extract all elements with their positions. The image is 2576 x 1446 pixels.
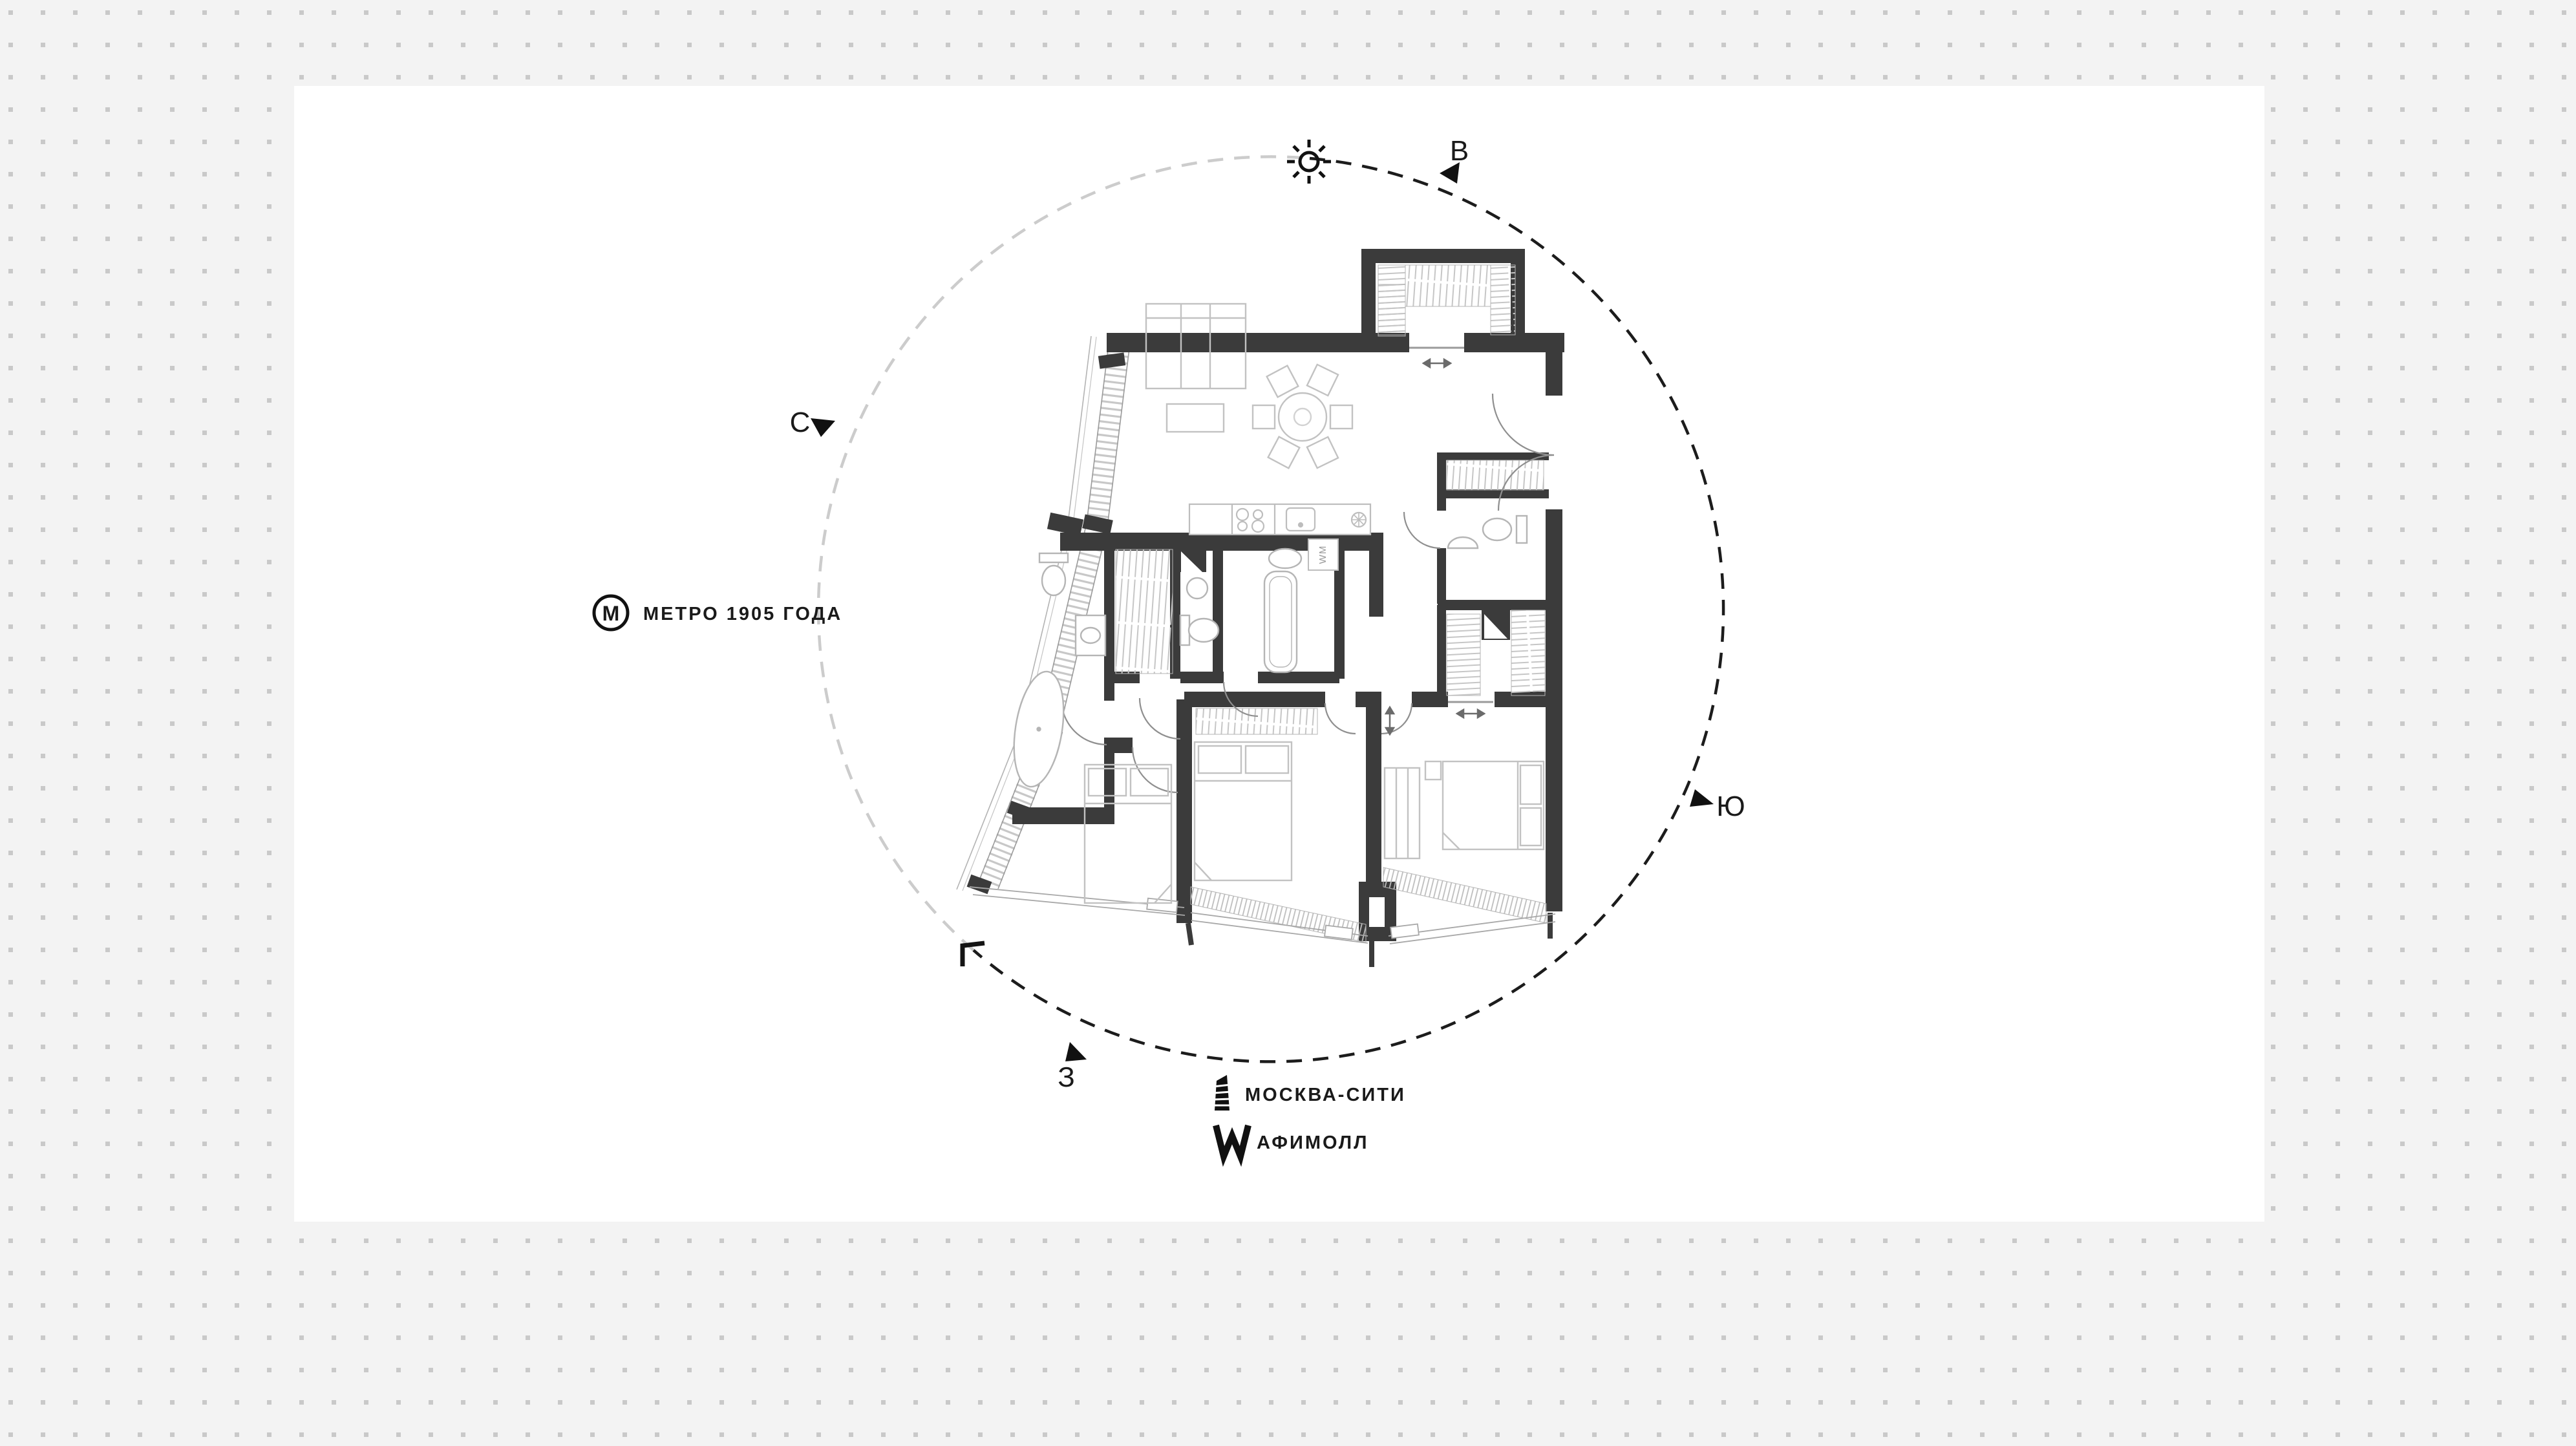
compass-east-label: В bbox=[1450, 135, 1469, 167]
floorplan-scene: С В Ю З М МЕТРО 1905 ГОДА МОСКВА-СИТИ АФ bbox=[0, 0, 2576, 1446]
page: С В Ю З М МЕТРО 1905 ГОДА МОСКВА-СИТИ АФ bbox=[0, 0, 2576, 1446]
compass-north-label: С bbox=[790, 407, 811, 438]
afimall-label: АФИМОЛЛ bbox=[1257, 1132, 1369, 1153]
washing-machine: WM bbox=[1308, 539, 1338, 570]
kitchen bbox=[1189, 504, 1370, 535]
moscow-city-label: МОСКВА-СИТИ bbox=[1245, 1085, 1406, 1105]
metro-icon-letter: М bbox=[602, 602, 620, 625]
wm-label: WM bbox=[1317, 546, 1328, 564]
compass-west-label: З bbox=[1058, 1061, 1076, 1093]
compass-south-label: Ю bbox=[1716, 791, 1745, 822]
metro-label: МЕТРО 1905 ГОДА bbox=[643, 604, 842, 624]
